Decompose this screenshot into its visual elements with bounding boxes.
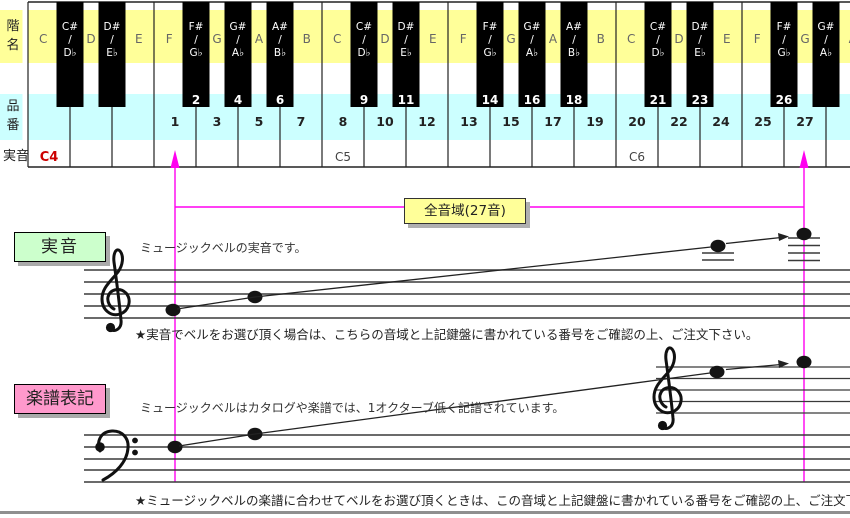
pitch-label-c4: C4 bbox=[40, 150, 59, 165]
actual-pitch-note: ★実音でベルをお選び頂く場合は、こちらの音域と上記鍵盤に書かれている番号をご確認… bbox=[135, 324, 758, 343]
note-f4 bbox=[166, 304, 181, 316]
bottom-divider bbox=[0, 511, 850, 514]
range-guide-left-arrow-icon bbox=[171, 150, 180, 168]
black-key-sharp-name: C# bbox=[62, 21, 78, 33]
white-key-number: 13 bbox=[460, 114, 477, 129]
note bbox=[711, 240, 726, 252]
white-key-number: 5 bbox=[255, 114, 264, 129]
black-key-sharp-name: G# bbox=[230, 21, 247, 33]
black-key-number: 4 bbox=[234, 93, 242, 107]
white-key-name: F bbox=[460, 32, 467, 46]
bass-clef-icon bbox=[95, 431, 138, 480]
black-key-number: 26 bbox=[776, 93, 793, 107]
black-key-flat-name: A♭ bbox=[526, 47, 538, 59]
black-key-flat-name: B♭ bbox=[568, 47, 580, 59]
white-key-number: 17 bbox=[544, 114, 561, 129]
black-key-flat-name: B♭ bbox=[274, 47, 286, 59]
white-key-number: 24 bbox=[712, 114, 730, 129]
white-key-number: 8 bbox=[339, 114, 348, 129]
full-range-badge: 全音域(27音) bbox=[404, 198, 526, 224]
black-key-flat-name: G♭ bbox=[483, 47, 496, 59]
black-key-flat-name: E♭ bbox=[694, 47, 706, 59]
white-key-name: D bbox=[86, 32, 95, 46]
row-label-actual-pitch: 実音 bbox=[1, 147, 31, 166]
black-key-number: 9 bbox=[360, 93, 368, 107]
white-key-name: C bbox=[627, 32, 635, 46]
white-key-number: 10 bbox=[376, 114, 394, 129]
range-arrow-line bbox=[726, 238, 781, 244]
black-key-number: 2 bbox=[192, 93, 200, 107]
range-guide-right-arrow-icon bbox=[800, 150, 809, 168]
black-key-sharp-name: G# bbox=[524, 21, 541, 33]
white-key-name: E bbox=[429, 32, 437, 46]
black-key-sharp-name: A# bbox=[566, 21, 582, 33]
black-key-flat-name: D♭ bbox=[63, 47, 76, 59]
black-key-number: 16 bbox=[524, 93, 541, 107]
white-key-number: 19 bbox=[586, 114, 603, 129]
black-key-flat-name: G♭ bbox=[189, 47, 202, 59]
white-key-number: 22 bbox=[670, 114, 687, 129]
black-key-slash: / bbox=[824, 34, 828, 46]
black-key-number: 21 bbox=[650, 93, 667, 107]
black-key-sharp-name: C# bbox=[356, 21, 372, 33]
black-key-sharp-name: A# bbox=[272, 21, 288, 33]
keyboard: CC4DEF1G3A5B7C8C5D10E12F13G15A17B19C20C6… bbox=[0, 0, 850, 167]
white-key-number: 20 bbox=[628, 114, 646, 129]
white-key-number: 1 bbox=[171, 114, 180, 129]
small-treble-clef-icon bbox=[654, 348, 681, 430]
white-key-number: 7 bbox=[297, 114, 306, 129]
white-key-number: 3 bbox=[213, 114, 222, 129]
black-key-number: 11 bbox=[398, 93, 415, 107]
pitch-label: C5 bbox=[335, 150, 351, 164]
black-key-number: 14 bbox=[482, 93, 499, 107]
note-f3 bbox=[168, 441, 183, 453]
black-key-sharp-name: C# bbox=[650, 21, 666, 33]
score-notation-description: ミュージックベルはカタログや楽譜では、1オクターブ低く記譜されています。 bbox=[140, 399, 564, 416]
pitch-label: C6 bbox=[629, 150, 645, 164]
white-key-number: 15 bbox=[502, 114, 519, 129]
black-key-sharp-name: D# bbox=[692, 21, 709, 33]
black-key-flat-name: E♭ bbox=[106, 47, 118, 59]
white-key-name: A bbox=[255, 32, 264, 46]
black-key-flat-name: G♭ bbox=[777, 47, 790, 59]
black-key-sharp-name: D# bbox=[104, 21, 121, 33]
score-notation-tag: 楽譜表記 bbox=[14, 384, 106, 414]
white-key-number: 27 bbox=[796, 114, 813, 129]
score-notation-staff bbox=[84, 367, 850, 482]
black-key-slash: / bbox=[530, 34, 534, 46]
black-key-slash: / bbox=[698, 34, 702, 46]
white-key-name: E bbox=[723, 32, 731, 46]
small-treble-staff bbox=[656, 367, 850, 413]
black-key-slash: / bbox=[194, 34, 198, 46]
arrowhead-icon bbox=[778, 233, 789, 241]
black-key-slash: / bbox=[488, 34, 492, 46]
actual-pitch-description: ミュージックベルの実音です。 bbox=[140, 239, 307, 256]
actual-pitch-tag: 実音 bbox=[14, 232, 106, 262]
black-key-sharp-name: F# bbox=[189, 21, 204, 33]
black-key-slash: / bbox=[278, 34, 282, 46]
white-key-name: B bbox=[597, 32, 605, 46]
black-key-slash: / bbox=[782, 34, 786, 46]
white-key-number: 25 bbox=[754, 114, 771, 129]
white-key-name: C bbox=[333, 32, 341, 46]
white-key-name: G bbox=[506, 32, 515, 46]
white-key-name: C bbox=[39, 32, 47, 46]
black-key-flat-name: D♭ bbox=[357, 47, 370, 59]
black-key-number: 18 bbox=[566, 93, 583, 107]
black-key-slash: / bbox=[236, 34, 240, 46]
treble-clef-icon bbox=[102, 250, 129, 332]
chart-graphics: CC4DEF1G3A5B7C8C5D10E12F13G15A17B19C20C6… bbox=[0, 0, 850, 518]
black-key-slash: / bbox=[68, 34, 72, 46]
white-key-name: G bbox=[212, 32, 221, 46]
black-key-flat-name: E♭ bbox=[400, 47, 412, 59]
black-key-number: 23 bbox=[692, 93, 709, 107]
black-key-slash: / bbox=[572, 34, 576, 46]
white-key-name: D bbox=[674, 32, 683, 46]
row-label-scale-name: 階名 bbox=[5, 17, 21, 55]
black-key-flat-name: A♭ bbox=[820, 47, 832, 59]
music-bell-range-chart: CC4DEF1G3A5B7C8C5D10E12F13G15A17B19C20C6… bbox=[0, 0, 850, 518]
band-gap bbox=[23, 0, 29, 167]
white-key-number: 12 bbox=[418, 114, 435, 129]
note bbox=[710, 366, 725, 378]
black-key-sharp-name: G# bbox=[818, 21, 835, 33]
black-key-sharp-name: F# bbox=[483, 21, 498, 33]
black-key-flat-name: D♭ bbox=[651, 47, 664, 59]
white-key-name: F bbox=[754, 32, 761, 46]
note-g5 bbox=[797, 356, 812, 368]
black-key-sharp-name: F# bbox=[777, 21, 792, 33]
black-key-slash: / bbox=[404, 34, 408, 46]
black-key-slash: / bbox=[110, 34, 114, 46]
white-key-name: D bbox=[380, 32, 389, 46]
note-g6 bbox=[797, 228, 812, 240]
black-key-sharp-name: D# bbox=[398, 21, 415, 33]
score-notation-note: ★ミュージックベルの楽譜に合わせてベルをお選び頂くときは、この音域と上記鍵盤に書… bbox=[135, 490, 850, 509]
white-key-name: A bbox=[549, 32, 558, 46]
black-key-slash: / bbox=[656, 34, 660, 46]
white-key-name: F bbox=[166, 32, 173, 46]
white-key-name: B bbox=[303, 32, 311, 46]
white-key-name: E bbox=[135, 32, 143, 46]
row-label-product-number: 品番 bbox=[5, 97, 21, 135]
white-key-name: G bbox=[800, 32, 809, 46]
black-key-flat-name: A♭ bbox=[232, 47, 244, 59]
black-key-number: 6 bbox=[276, 93, 284, 107]
black-key-slash: / bbox=[362, 34, 366, 46]
